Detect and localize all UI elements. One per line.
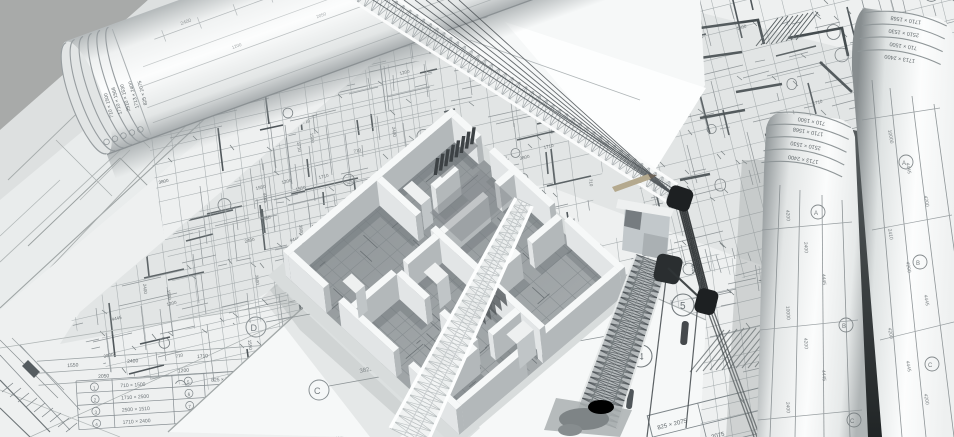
svg-text:B: B bbox=[916, 261, 920, 267]
svg-text:5: 5 bbox=[680, 301, 686, 312]
svg-text:2400: 2400 bbox=[784, 402, 791, 414]
svg-text:D: D bbox=[251, 323, 258, 333]
svg-text:2400: 2400 bbox=[127, 358, 139, 365]
svg-text:2400: 2400 bbox=[802, 242, 809, 254]
svg-text:4200: 4200 bbox=[784, 210, 791, 222]
svg-text:C: C bbox=[850, 419, 855, 425]
svg-text:1550: 1550 bbox=[67, 362, 79, 369]
svg-text:4200: 4200 bbox=[802, 338, 809, 350]
svg-text:1710: 1710 bbox=[197, 353, 209, 360]
svg-text:10000: 10000 bbox=[784, 306, 791, 321]
svg-text:4445: 4445 bbox=[820, 274, 827, 286]
svg-text:1200: 1200 bbox=[178, 368, 190, 375]
svg-text:4445: 4445 bbox=[820, 370, 827, 382]
svg-text:B: B bbox=[842, 324, 846, 330]
svg-text:A: A bbox=[814, 211, 818, 217]
svg-text:C: C bbox=[928, 363, 933, 369]
svg-text:C: C bbox=[314, 386, 321, 396]
